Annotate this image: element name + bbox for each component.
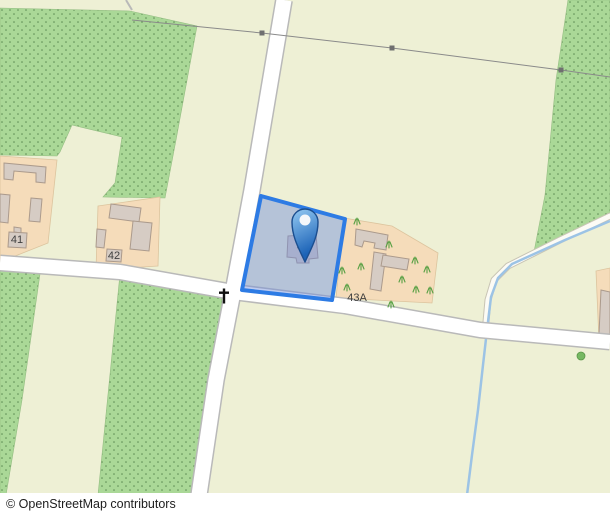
building xyxy=(0,194,10,223)
map-window: 41424343A © OpenStreetMap contributors xyxy=(0,0,610,515)
power-pylon xyxy=(260,31,265,36)
power-pylon xyxy=(390,46,395,51)
housenumber-43a: 43A xyxy=(347,292,367,304)
building xyxy=(130,221,152,251)
power-pylon xyxy=(559,68,564,73)
building xyxy=(599,290,610,335)
attribution-bar: © OpenStreetMap contributors xyxy=(0,493,610,515)
attribution-text[interactable]: © OpenStreetMap contributors xyxy=(6,497,176,511)
map-svg: 41424343A xyxy=(0,0,610,493)
building xyxy=(96,229,106,248)
map-canvas[interactable]: 41424343A xyxy=(0,0,610,493)
housenumber-41: 41 xyxy=(11,234,23,246)
building xyxy=(29,198,42,222)
tree-symbol xyxy=(577,352,585,360)
housenumber-42: 42 xyxy=(108,250,120,262)
